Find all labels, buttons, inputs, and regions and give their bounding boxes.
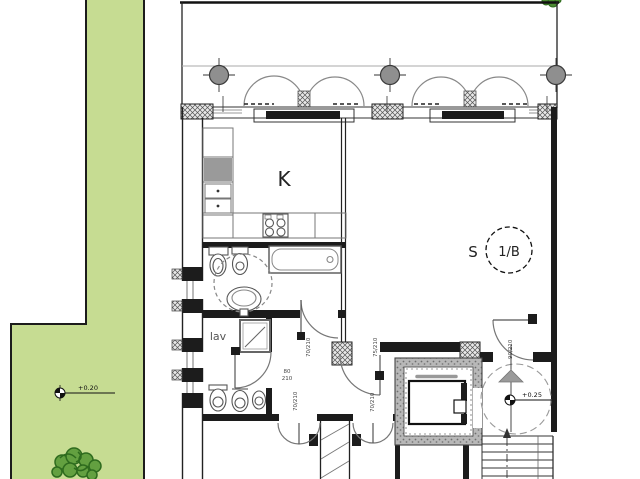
window-left-lav [172,338,205,408]
elevator-shaft-opening [473,388,482,428]
cab-door [461,414,467,424]
door-jamb [352,434,361,446]
hall-pier [332,342,352,365]
window-left-bath [172,267,205,313]
lintel [442,111,504,119]
mullion-pier [464,91,476,107]
bidet-icon [232,247,248,275]
terrace [180,2,572,108]
mullion-pier [298,91,310,107]
kitchen-label: K [277,167,291,191]
small-basin-icon [253,391,266,409]
stairs: +0.25 [481,345,553,479]
straight-stair [482,428,553,479]
kitchen: K [203,128,346,238]
room-s-label: S [468,243,478,261]
floor-plan-canvas: +0.20 [0,0,640,479]
lintel [266,111,340,119]
toilet-icon [209,385,227,411]
door-dim: 75/210 [373,337,379,357]
garden-level-text: +0.20 [78,384,98,392]
cab-door-panel [454,400,466,413]
wall-pier [372,104,403,119]
bathroom [209,246,341,316]
facade-wall [181,96,557,122]
floor-plan-drawing: +0.20 [0,0,640,479]
lav-label: lav [210,330,227,343]
unit-number-label: 1/B [498,245,520,260]
column-icon [203,58,235,92]
elevator [395,358,482,445]
column-icon [540,58,572,92]
door-dim: 70/210 [306,337,312,357]
cab-door [461,383,467,401]
column-icon [374,58,406,92]
door-dim: 70/210 [370,392,376,412]
door-dim: 70/210 [293,391,299,411]
wall-pier [181,104,213,119]
kitchen-sink-counter [204,158,232,181]
vent-shaft [321,421,350,479]
garden-lawn [11,0,144,479]
bidet-icon [232,389,248,412]
shower-tray-icon [240,320,270,352]
lav-room: lav [209,320,270,412]
stove-icon [263,214,288,237]
toilet-icon [209,247,228,276]
bathtub-icon [269,246,341,273]
stair-level-text: +0.25 [522,391,542,399]
door-dim-stack-bottom: 210 [282,376,293,382]
interior-doors [231,300,537,444]
door-dim-stack-top: 80 [284,369,291,375]
stair-level-marker: +0.25 [505,391,552,405]
room-s: S 1/B [468,227,532,273]
stair-direction-arrow [499,370,523,382]
